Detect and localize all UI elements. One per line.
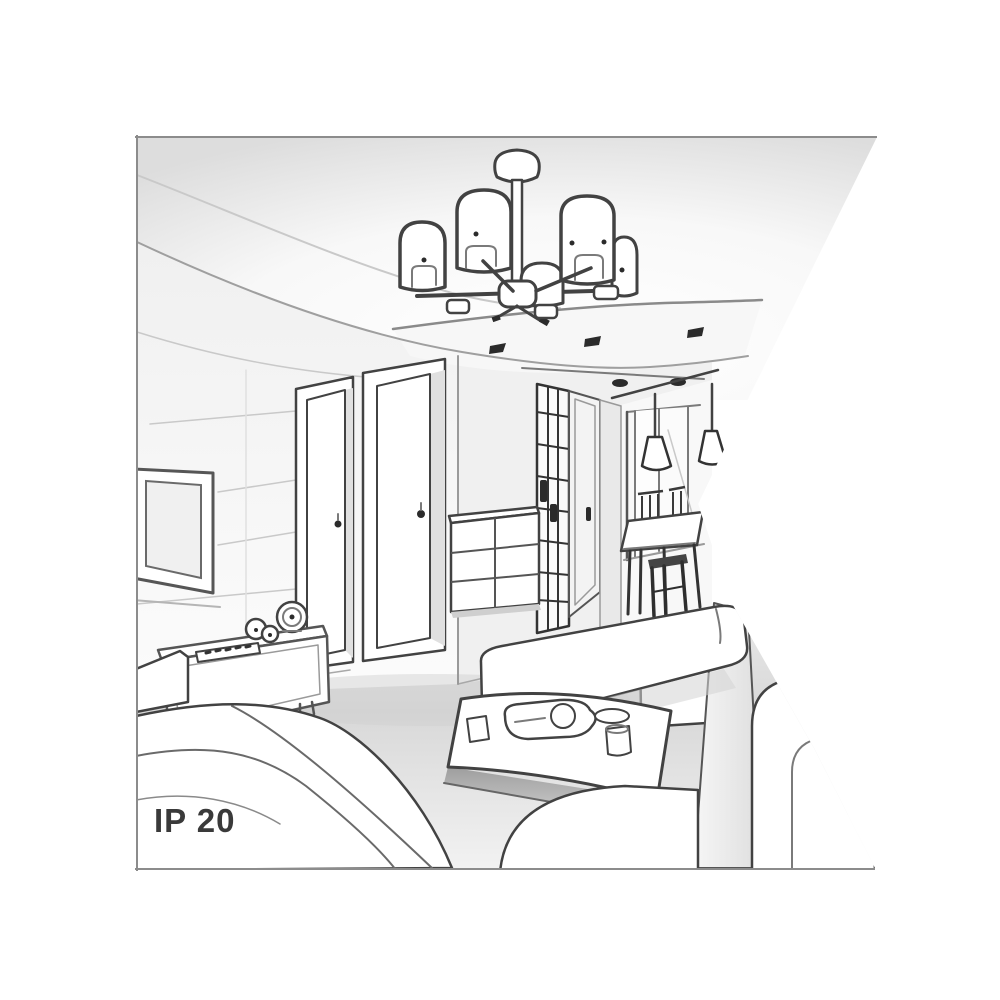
phone-item: [467, 716, 489, 742]
door-left-knob: [335, 521, 342, 528]
serving-platter: [505, 700, 596, 739]
door-right: [363, 359, 445, 661]
room-sketch: [0, 0, 1000, 1000]
closet-door: [569, 391, 600, 617]
clock: [277, 602, 307, 632]
ip-rating-label: IP 20: [154, 802, 235, 840]
tv-screen: [146, 481, 201, 578]
sofa-right-module: [752, 672, 875, 872]
chest-of-drawers: [449, 507, 541, 618]
door-right-knob: [417, 510, 425, 518]
chandelier-stem: [512, 180, 522, 283]
wardrobe-grid: [537, 384, 569, 633]
product-illustration: IP 20: [0, 0, 1000, 1000]
dish: [595, 709, 629, 723]
chandelier-canopy: [495, 150, 540, 182]
